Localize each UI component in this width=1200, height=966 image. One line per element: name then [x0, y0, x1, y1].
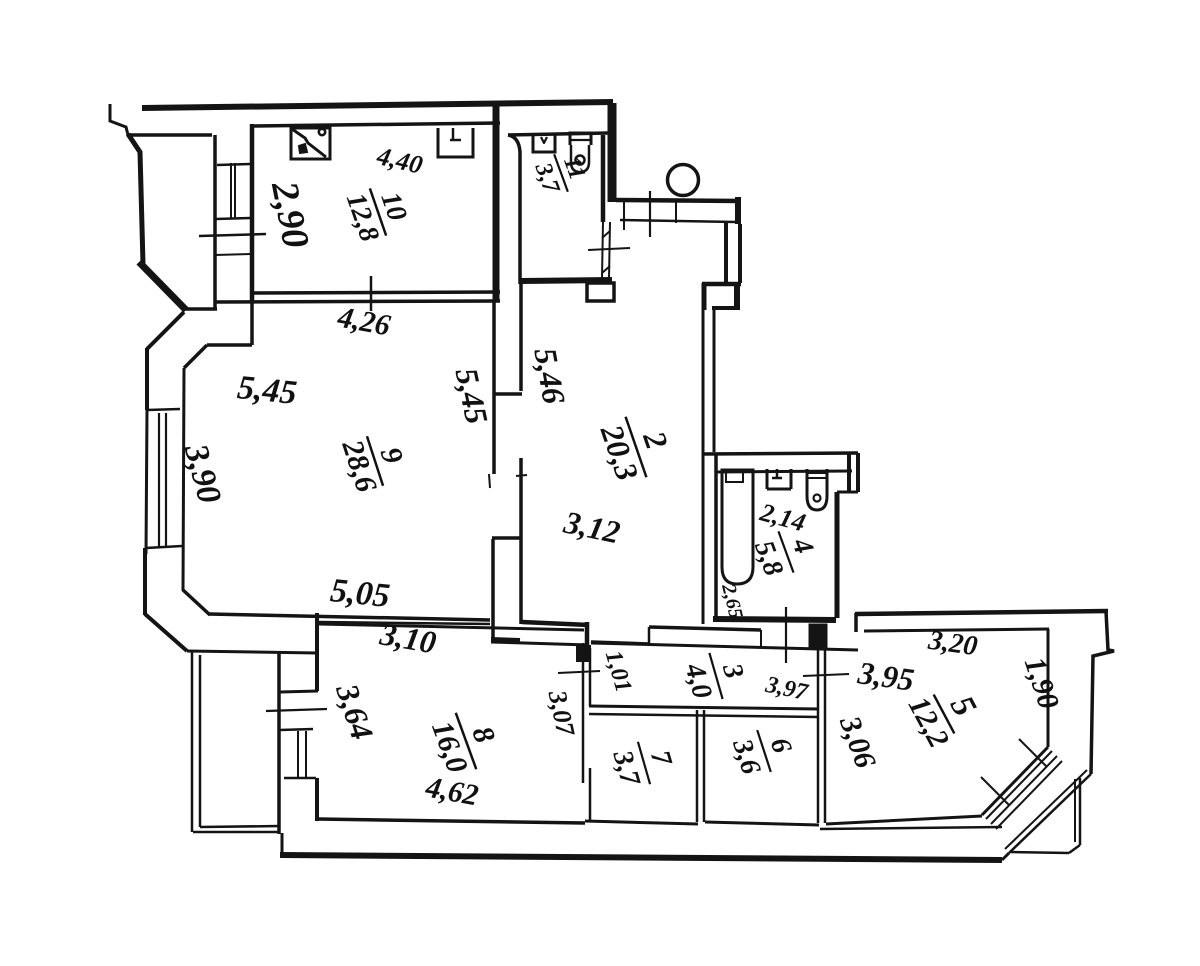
svg-text:1,90: 1,90 — [1018, 653, 1066, 713]
svg-text:5,45: 5,45 — [449, 365, 496, 427]
svg-text:2,65: 2,65 — [717, 581, 747, 621]
svg-text:3,20: 3,20 — [926, 625, 980, 663]
svg-text:2,14: 2,14 — [756, 497, 808, 537]
svg-text:3,07: 3,07 — [542, 687, 580, 739]
svg-text:4,26: 4,26 — [334, 301, 392, 343]
svg-text:6: 6 — [764, 734, 798, 757]
svg-text:4,62: 4,62 — [422, 771, 480, 813]
svg-text:2,90: 2,90 — [263, 177, 317, 251]
svg-text:2: 2 — [636, 426, 676, 454]
svg-text:3,95: 3,95 — [855, 654, 916, 698]
svg-text:8: 8 — [465, 722, 501, 747]
svg-text:4: 4 — [785, 533, 819, 558]
svg-text:1,01: 1,01 — [600, 648, 637, 696]
svg-text:3: 3 — [716, 659, 750, 682]
svg-text:5,45: 5,45 — [236, 369, 299, 412]
svg-text:9: 9 — [374, 443, 410, 467]
svg-text:16,0: 16,0 — [425, 717, 474, 778]
svg-text:4,40: 4,40 — [373, 141, 425, 180]
svg-text:3,64: 3,64 — [329, 679, 381, 744]
svg-text:3,12: 3,12 — [560, 503, 623, 550]
svg-text:5,05: 5,05 — [329, 572, 392, 615]
svg-text:7: 7 — [644, 747, 678, 770]
svg-text:5,46: 5,46 — [527, 345, 572, 406]
svg-text:3,06: 3,06 — [833, 711, 882, 773]
svg-text:5: 5 — [943, 690, 984, 722]
